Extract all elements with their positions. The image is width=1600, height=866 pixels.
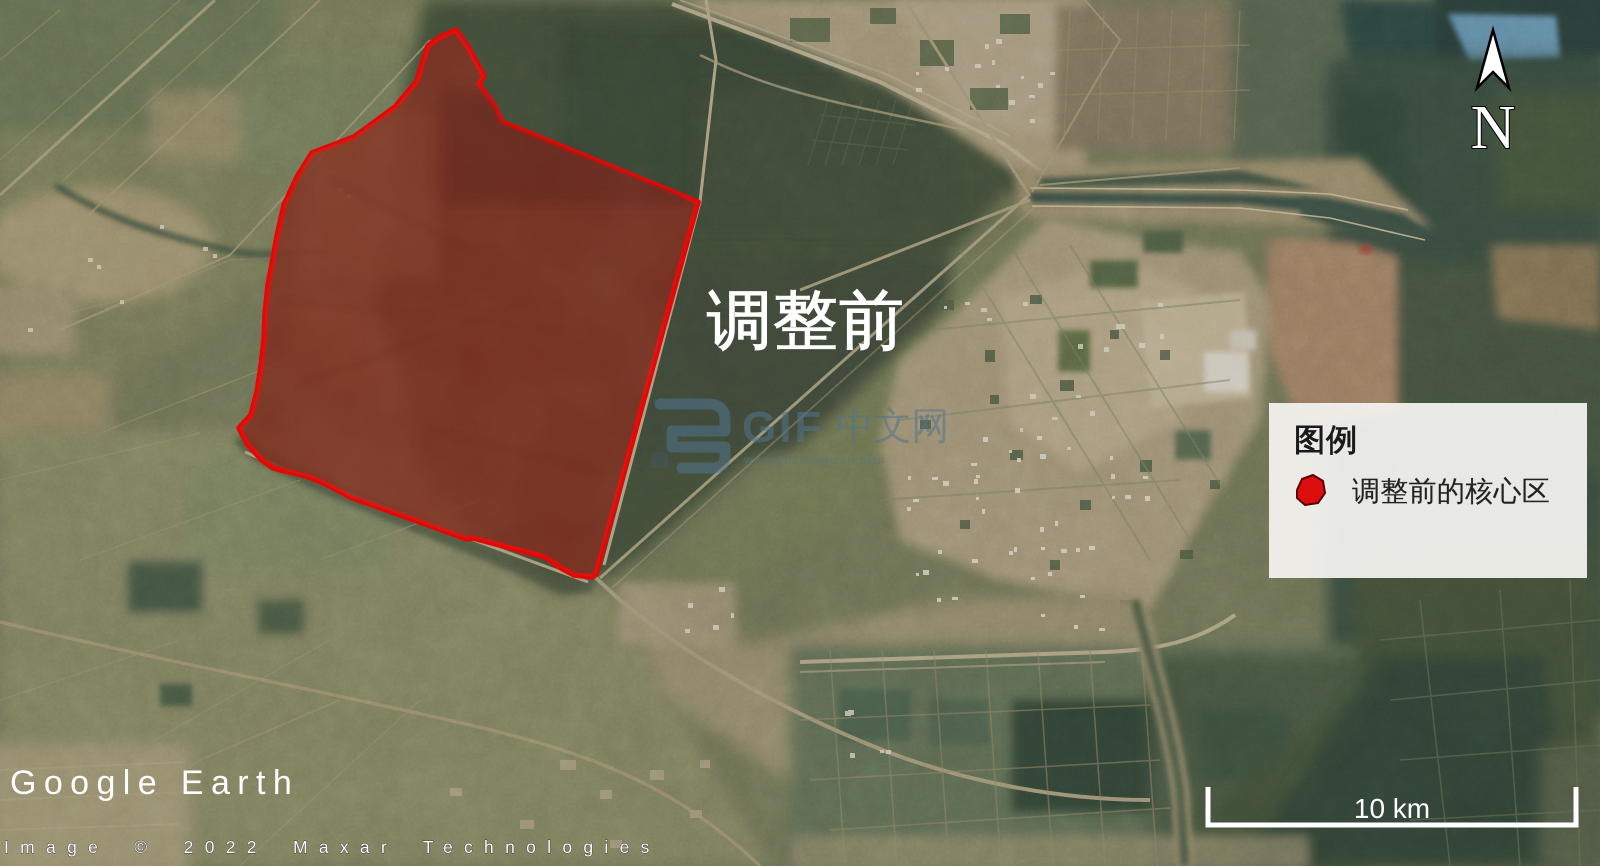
svg-text:Google Earth: Google Earth xyxy=(10,764,299,802)
svg-text:N: N xyxy=(1471,94,1516,162)
svg-text:GIF: GIF xyxy=(742,403,824,452)
svg-text:www.gifzhongwen.com: www.gifzhongwen.com xyxy=(743,453,885,467)
svg-text:10 km: 10 km xyxy=(1354,793,1430,824)
svg-text:Image © 2022 Maxar Technologie: Image © 2022 Maxar Technologies xyxy=(4,837,661,857)
